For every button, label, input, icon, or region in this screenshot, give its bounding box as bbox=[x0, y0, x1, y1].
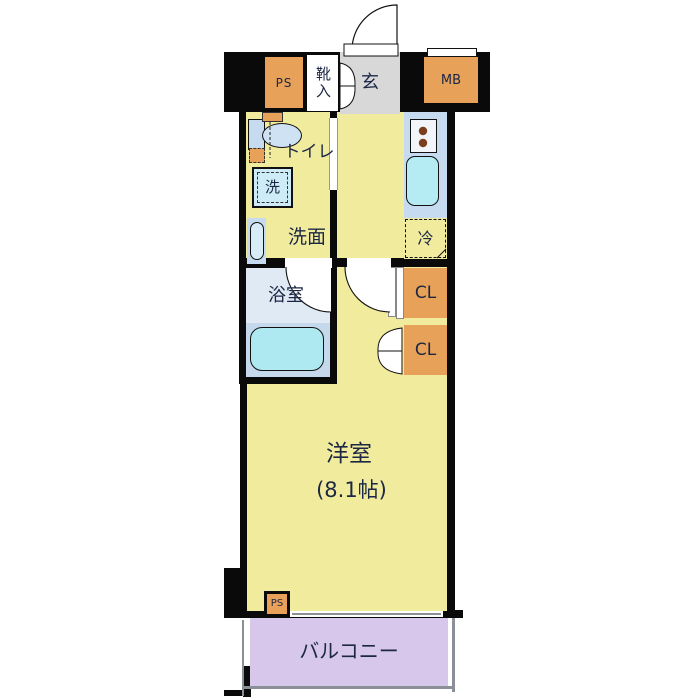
balcony-rail-left bbox=[242, 620, 244, 696]
bathroom-label: 浴室 bbox=[251, 287, 321, 305]
meter-box-vent bbox=[427, 48, 477, 57]
washroom-label: 洗面 bbox=[277, 228, 337, 247]
balcony-window bbox=[290, 611, 443, 617]
closet-door-strip bbox=[396, 267, 404, 319]
shoe-cabinet-label: 靴入 bbox=[307, 55, 338, 111]
balcony-rail-right bbox=[452, 618, 455, 692]
refrigerator-label: 冷 bbox=[405, 219, 446, 258]
entrance-door-arc bbox=[352, 5, 397, 50]
meter-box-label: MB bbox=[424, 57, 478, 103]
wall-room-left bbox=[240, 382, 247, 570]
washbasin-icon bbox=[250, 222, 264, 260]
ps-top-label: PS bbox=[265, 57, 303, 108]
hallway-kitchen-floor bbox=[337, 112, 405, 258]
main-room-size-label: (8.1帖) bbox=[249, 478, 454, 502]
floor-plan: PS PS 靴入 玄 MB トイレ 洗 洗面 冷 浴室 C bbox=[0, 0, 700, 700]
kitchen-sink-icon bbox=[406, 156, 439, 206]
entrance-label: 玄 bbox=[340, 56, 400, 110]
room-door-leaf bbox=[388, 267, 396, 317]
pipe-shaft-bottom-box: PS bbox=[267, 594, 287, 614]
stove-icon bbox=[410, 119, 437, 153]
closet-upper-label: CL bbox=[404, 268, 447, 318]
toilet-counter-top bbox=[262, 112, 283, 122]
balcony-rail-bottom bbox=[242, 686, 455, 689]
main-room-label: 洋室 bbox=[249, 442, 449, 466]
wall-bath-bottom bbox=[239, 377, 345, 384]
bathtub-icon bbox=[250, 327, 324, 371]
toilet-label: トイレ bbox=[278, 143, 340, 161]
wall-right bbox=[447, 112, 455, 610]
washing-machine-label: 洗 bbox=[252, 167, 293, 208]
toilet-counter-low bbox=[249, 148, 265, 163]
balcony-label: バルコニー bbox=[250, 641, 448, 661]
closet-lower-label: CL bbox=[404, 325, 447, 375]
